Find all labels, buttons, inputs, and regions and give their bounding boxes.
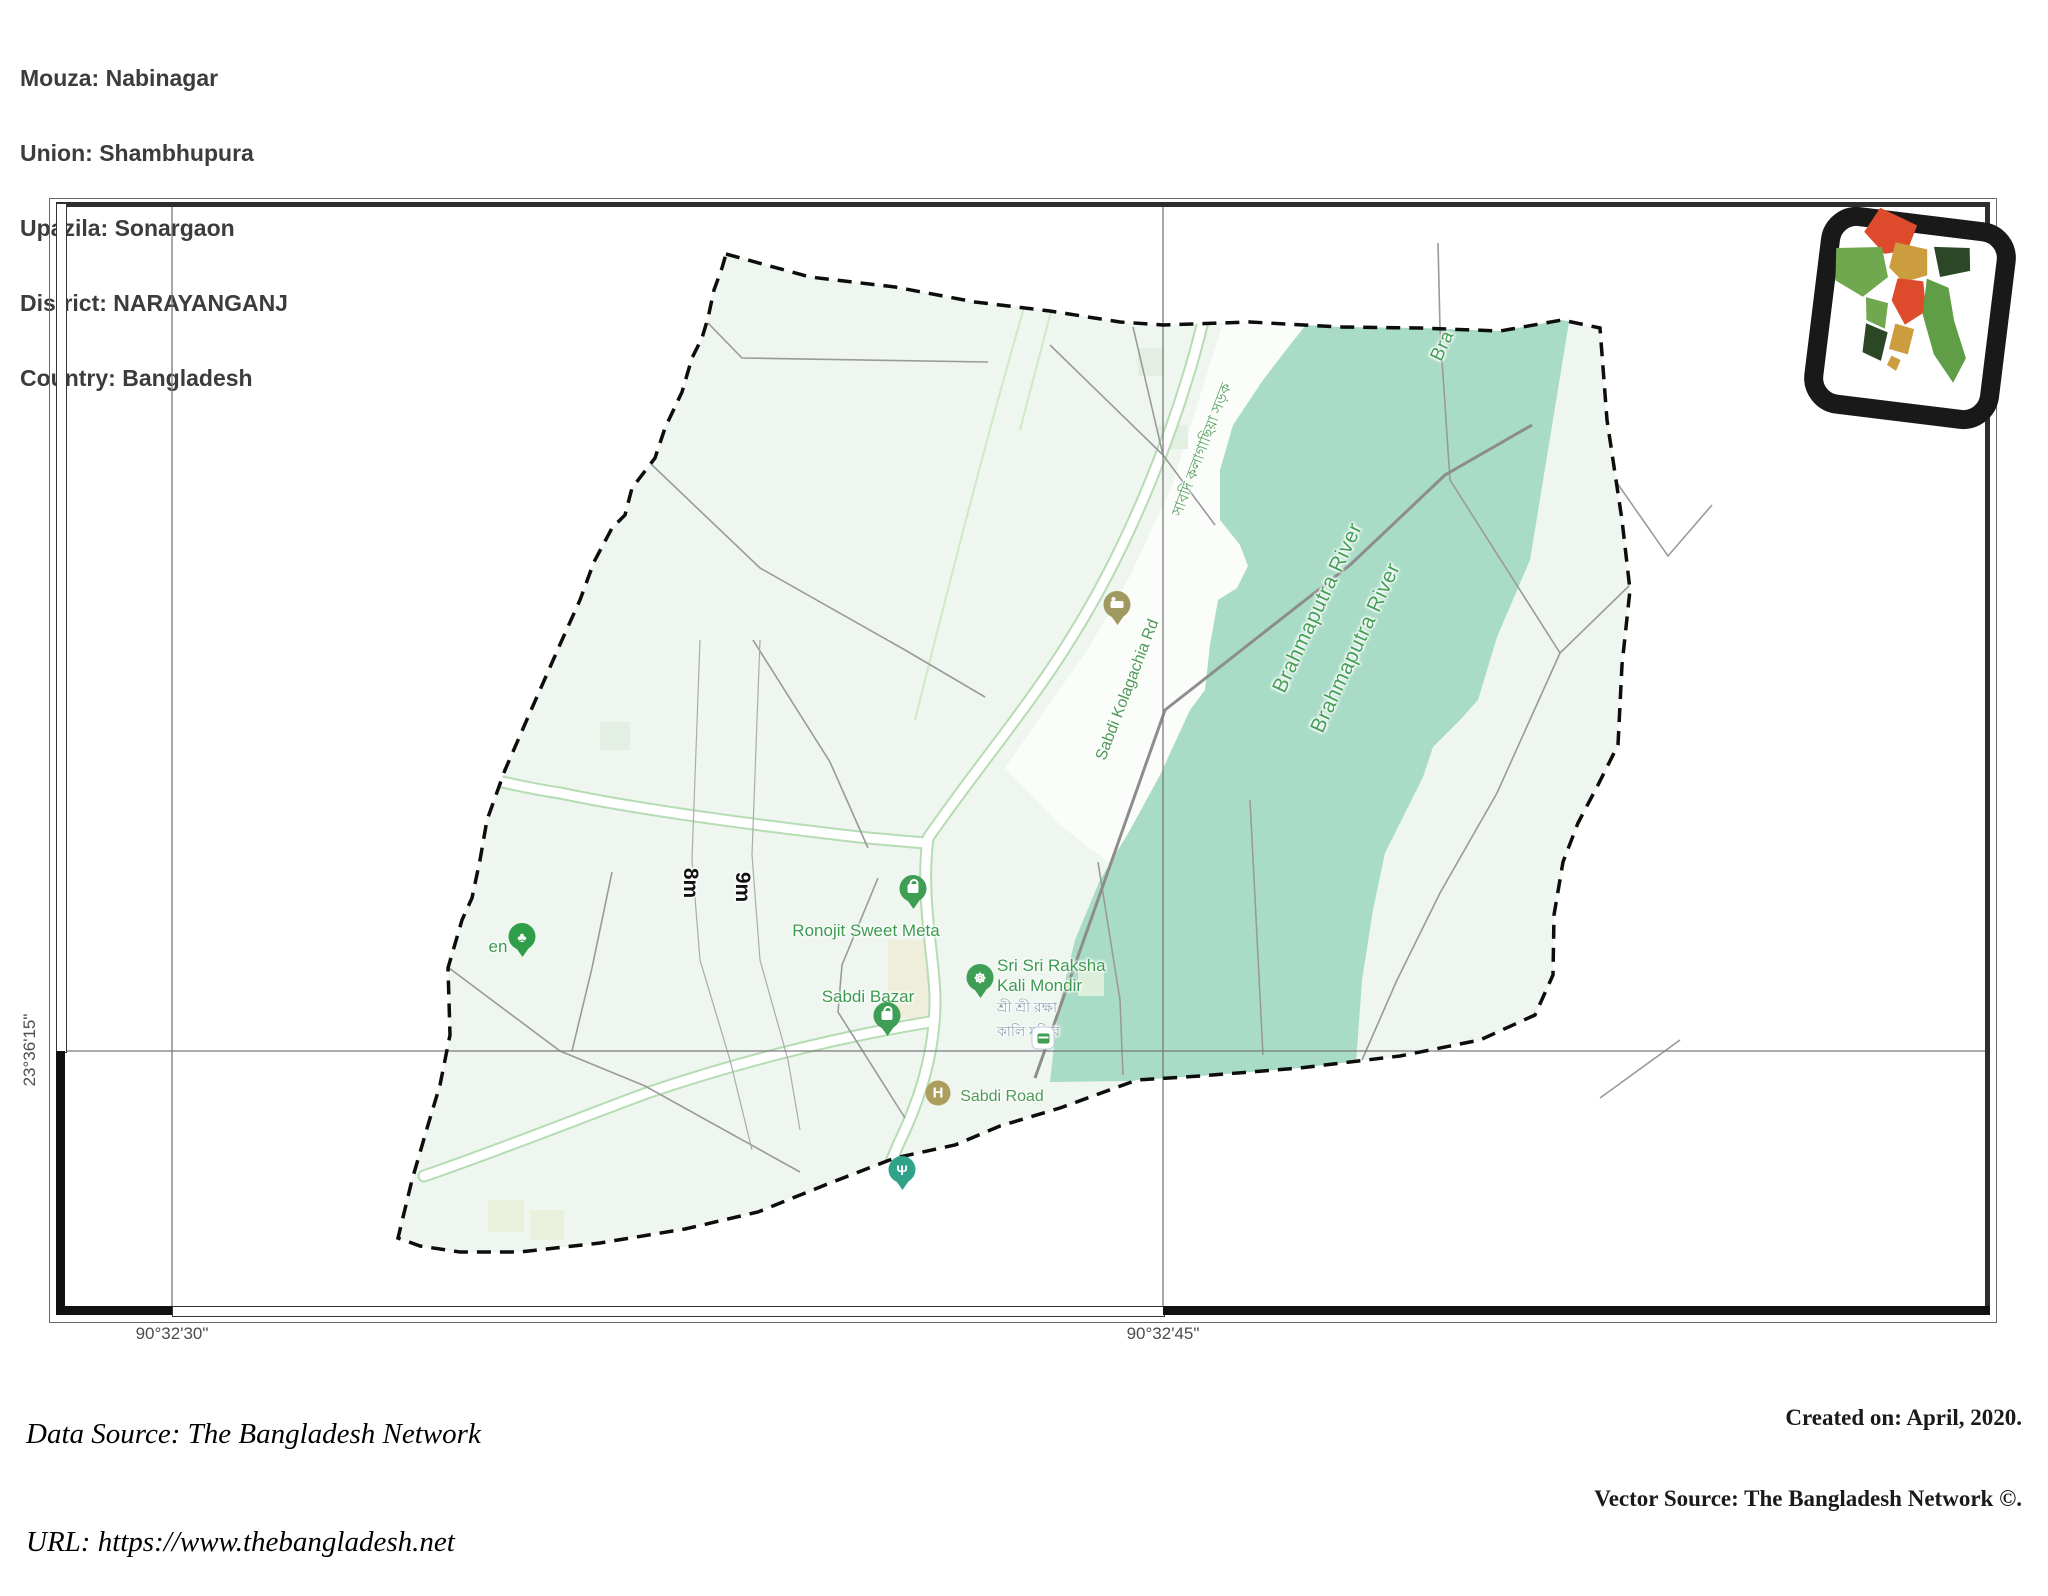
url-line: URL: https://www.thebangladesh.net [26, 1524, 481, 1560]
bangladesh-network-logo [1800, 203, 2020, 433]
frame-bottom-band-black1 [56, 1306, 172, 1315]
bangladesh-map-icon [1797, 198, 2021, 431]
frame-left-band-white [56, 203, 67, 1053]
lat-label-15: 23°36'15" [20, 1014, 40, 1087]
hotel-icon: H [926, 1081, 951, 1106]
fork-knife-icon: Ψ [896, 1163, 907, 1177]
bus-icon [1037, 1033, 1049, 1043]
shopping-bag-icon [882, 1011, 893, 1020]
vector-source-line: Vector Source: The Bangladesh Network ©. [1594, 1485, 2022, 1512]
mondir-line1: Sri Sri Raksha [997, 956, 1106, 976]
park-pin-tree: ♣ [509, 923, 536, 950]
frame-bottom-band-white [172, 1306, 1165, 1317]
contour-label-8m: 8m [678, 868, 702, 898]
tree-icon: ♣ [517, 930, 526, 944]
page: { "colors": { "land_tint": "#eef6ef", "r… [0, 0, 2048, 1448]
created-line: Created on: April, 2020. [1594, 1404, 2022, 1431]
lon-label-30: 90°32'30" [136, 1324, 209, 1344]
poi-label-sabdi-bazar: Sabdi Bazar [822, 987, 915, 1007]
om-icon: ☸ [974, 971, 987, 985]
restaurant-pin: Ψ [889, 1156, 916, 1183]
temple-pin-mondir: ☸ [967, 964, 994, 991]
frame-top-border [56, 202, 1990, 207]
frame-bottom-band-black2 [1163, 1306, 1990, 1315]
poi-label-park-partial: en [489, 937, 508, 957]
shop-pin-ronojit [900, 875, 927, 902]
lon-label-45: 90°32'45" [1127, 1324, 1200, 1344]
road-label-sabdi-road: Sabdi Road [960, 1088, 1044, 1106]
frame-left-band-black [56, 1051, 65, 1314]
poi-label-ronojit: Ronojit Sweet Meta [792, 921, 939, 941]
bus-stop-icon [1033, 1028, 1054, 1049]
footer-source-block: Data Source: The Bangladesh Network URL:… [26, 1344, 481, 1596]
mondir-bn1: শ্রী শ্রী রক্ষা [997, 996, 1106, 1020]
outer-neatline [49, 198, 1997, 1323]
shopping-bag-icon [908, 884, 919, 893]
data-source-line: Data Source: The Bangladesh Network [26, 1416, 481, 1452]
footer-credit-block: Created on: April, 2020. Vector Source: … [1594, 1350, 2022, 1539]
shop-pin-sabdi-bazar [874, 1002, 901, 1029]
mondir-line2: Kali Mondir [997, 976, 1106, 996]
bed-icon [1111, 601, 1124, 608]
lodging-pin [1104, 591, 1131, 618]
contour-label-9m: 9m [730, 872, 754, 902]
